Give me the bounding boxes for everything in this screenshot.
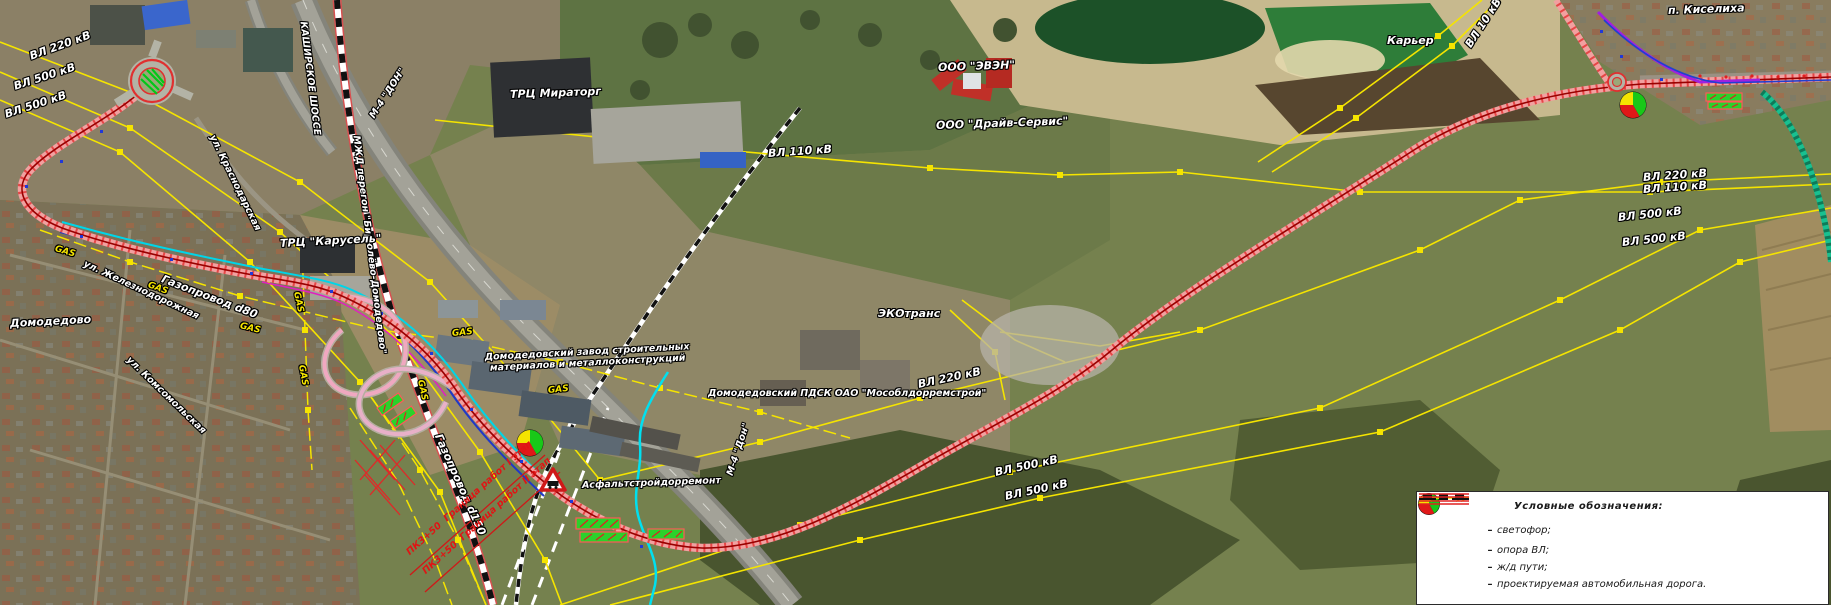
legend-dash: – [1483, 525, 1497, 536]
legend-panel: Условные обозначения: – светофор; – опор… [1416, 491, 1829, 605]
legend-dash: – [1483, 579, 1497, 590]
legend-item-projected-road: – проектируемая автомобильная дорога. [1427, 576, 1828, 593]
legend-label: проектируемая автомобильная дорога. [1497, 579, 1706, 590]
legend-dash: – [1483, 562, 1497, 573]
map-viewport[interactable]: ВЛ 220 кВВЛ 500 кВВЛ 500 кВКАШИРСКОЕ ШОС… [0, 0, 1831, 605]
legend-title: Условные обозначения: [1514, 501, 1828, 512]
legend-label: опора ВЛ; [1497, 545, 1549, 556]
legend-label: ж/д пути; [1497, 562, 1548, 573]
legend-item-power-tower: – опора ВЛ; [1427, 542, 1828, 559]
legend-item-railway: – ж/д пути; [1427, 559, 1828, 576]
traffic-light-icon [1620, 92, 1647, 119]
roundabout-kiselikha [1608, 73, 1626, 91]
legend-item-traffic-light: – светофор; [1427, 518, 1828, 542]
projected-road-icon [1417, 492, 1471, 506]
legend-label: светофор; [1497, 525, 1551, 536]
traffic-light-icon [517, 430, 544, 457]
legend-dash: – [1483, 545, 1497, 556]
